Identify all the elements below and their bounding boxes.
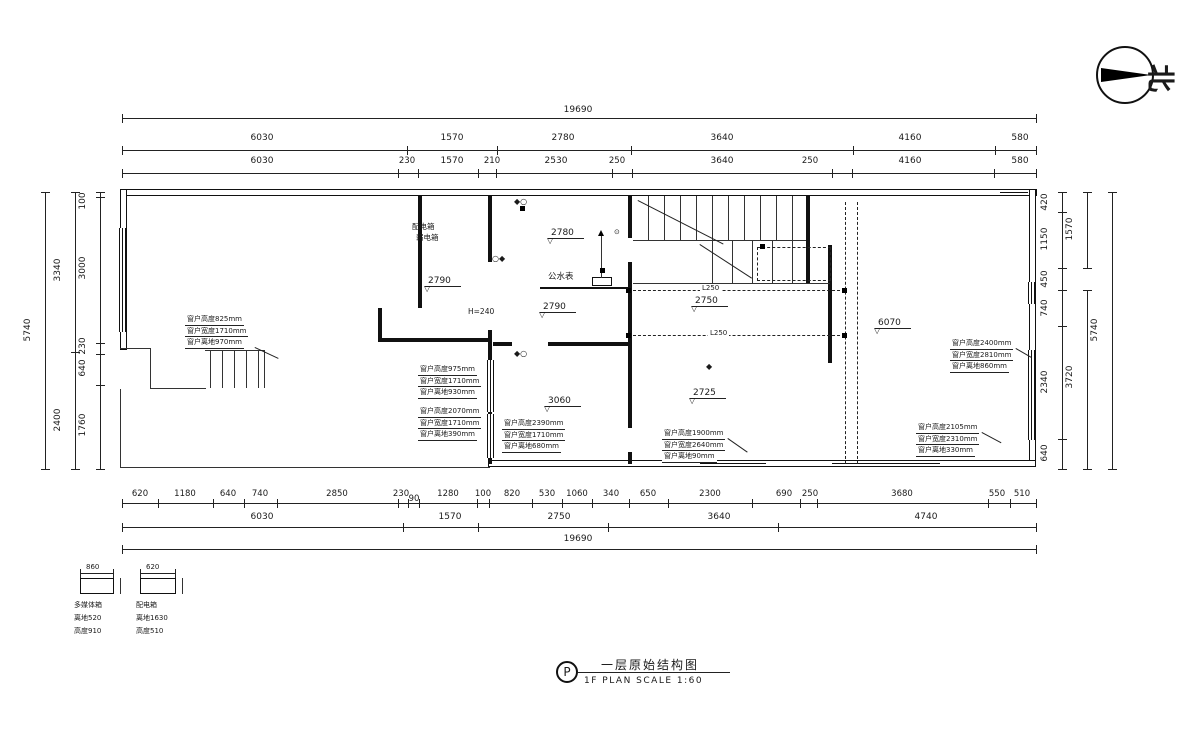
dim-label: 100 <box>470 489 496 499</box>
dim-label: 620 <box>146 563 159 571</box>
elevation-marker: ▽2725 <box>690 388 726 399</box>
window-annotation: 窗户高度2400mm窗户宽度2810mm窗户离地860mm <box>950 338 1013 373</box>
dim-label: 3340 <box>53 253 63 287</box>
window <box>1000 189 1028 196</box>
elevation-marker: ▽2750 <box>692 296 728 307</box>
dim-label: 2780 <box>541 133 585 143</box>
dim-label: 3640 <box>700 133 744 143</box>
dim-label: 640 <box>78 351 88 385</box>
dim-label: 1570 <box>1065 212 1075 246</box>
window <box>832 460 940 467</box>
dim-label: 210 <box>479 156 505 166</box>
opening-height-label: H=240 <box>468 307 494 316</box>
drawing-subtitle: 1F PLAN SCALE 1:60 <box>584 676 703 686</box>
elevation-marker: ▽2780 <box>548 228 584 239</box>
weak-box-label: 弱电箱 <box>416 232 439 243</box>
elevation-marker: ▽2790 <box>540 302 576 313</box>
dim-label: 4160 <box>888 133 932 143</box>
dim-label: 4160 <box>888 156 932 166</box>
dim-label: 580 <box>998 133 1042 143</box>
dim-label: 250 <box>797 489 823 499</box>
beam-label: L250 <box>708 329 729 337</box>
dim-label: 640 <box>215 489 241 499</box>
dim-label: 740 <box>247 489 273 499</box>
window-annotation: 窗户高度2390mm窗户宽度1710mm窗户离地680mm <box>502 418 565 453</box>
detail-label: 离地520 <box>74 613 101 623</box>
dim-label: 1060 <box>564 489 590 499</box>
window <box>487 414 494 458</box>
dim-label: 640 <box>1040 436 1050 470</box>
dim-label: 860 <box>86 563 99 571</box>
window <box>1028 350 1035 440</box>
dim-label: 2300 <box>697 489 723 499</box>
detail-label: 离地1630 <box>136 613 168 623</box>
window <box>119 228 126 332</box>
dim-label: 6030 <box>240 512 284 522</box>
beam-line <box>857 202 858 464</box>
dim-label: 100 <box>78 184 88 218</box>
dim-label: 1180 <box>172 489 198 499</box>
dim-label: 580 <box>998 156 1042 166</box>
wall-top <box>120 189 1037 196</box>
wall-interior <box>548 342 630 346</box>
floor-plan-drawing: 北 19690 6030 1570 2780 3640 4160 580 603… <box>0 0 1200 737</box>
valve-icon: ◆ <box>706 362 712 371</box>
wall-interior <box>628 196 632 238</box>
dim-label: 2850 <box>324 489 350 499</box>
window-annotation: 窗户高度2105mm窗户宽度2310mm窗户离地330mm <box>916 422 979 457</box>
dim-label: 5740 <box>1090 313 1100 347</box>
dim-label: 3640 <box>700 156 744 166</box>
dim-label: 1760 <box>78 408 88 442</box>
window-annotation: 窗户高度1900mm窗户宽度2640mm窗户离地90mm <box>662 428 725 463</box>
dim-label: 340 <box>598 489 624 499</box>
dim-label: 2400 <box>53 403 63 437</box>
water-meter-label: 公水表 <box>548 270 574 282</box>
beam-label: L250 <box>700 284 721 292</box>
beam-line <box>633 335 845 336</box>
pipe-arrow-icon <box>598 230 604 236</box>
stair-break-line <box>699 244 752 279</box>
dim-label: 19690 <box>556 105 600 115</box>
dim-label: 1570 <box>428 512 472 522</box>
plan-mark: P <box>556 661 578 683</box>
dim-label: 740 <box>1040 291 1050 325</box>
beam-line <box>633 290 845 291</box>
dim-label: 6030 <box>240 133 284 143</box>
dim-label: 250 <box>797 156 823 166</box>
window <box>1028 282 1035 304</box>
wall-interior <box>493 342 512 346</box>
window-annotation: 窗户高度975mm窗户宽度1710mm窗户离地930mm <box>418 364 481 399</box>
dim-label: 3640 <box>697 512 741 522</box>
dim-label: 530 <box>534 489 560 499</box>
window <box>487 360 494 412</box>
dim-label: 690 <box>771 489 797 499</box>
valve-icon: ◆○ <box>514 349 527 358</box>
detail-label: 高度910 <box>74 626 101 636</box>
dim-label: 1570 <box>430 133 474 143</box>
dim-label: 620 <box>127 489 153 499</box>
dim-label: 1150 <box>1040 222 1050 256</box>
dim-label: 3720 <box>1065 360 1075 394</box>
elevation-marker: ▽3060 <box>545 396 581 407</box>
wall-interior <box>378 338 492 342</box>
dim-label: 650 <box>635 489 661 499</box>
valve-icon: ◆○ <box>514 197 527 206</box>
dim-label: 230 <box>394 156 420 166</box>
power-box-label: 配电箱 <box>412 221 435 232</box>
water-meter-box <box>592 277 612 286</box>
window-annotation: 窗户高度2070mm窗户宽度1710mm窗户离地390mm <box>418 406 481 441</box>
dim-label: 5740 <box>23 313 33 347</box>
dim-label: 2750 <box>537 512 581 522</box>
wall-interior <box>488 196 492 262</box>
dim-label: 510 <box>1009 489 1035 499</box>
elevation-marker: ▽2790 <box>425 276 461 287</box>
entry-steps <box>205 350 265 351</box>
detail-label: 配电箱 <box>136 600 157 610</box>
dim-label: 1280 <box>435 489 461 499</box>
dim-label: 250 <box>604 156 630 166</box>
dim-label: 3680 <box>889 489 915 499</box>
detail-label: 多媒体箱 <box>74 600 102 610</box>
detail-label: 高度510 <box>136 626 163 636</box>
dim-label: 19690 <box>556 534 600 544</box>
dim-label: 4740 <box>904 512 948 522</box>
north-label: 北 <box>1142 64 1182 92</box>
detail-box <box>140 578 176 594</box>
valve-icon: ○◆ <box>492 254 505 263</box>
dim-label: 420 <box>1040 185 1050 219</box>
drawing-title: 一层原始结构图 <box>601 656 699 673</box>
wall-interior <box>628 452 632 464</box>
dim-label: 1570 <box>430 156 474 166</box>
wall-interior <box>378 308 382 342</box>
dim-label: 2340 <box>1040 365 1050 399</box>
dim-label: 3000 <box>78 251 88 285</box>
dim-label: 550 <box>984 489 1010 499</box>
elevation-marker: ▽6070 <box>875 318 911 329</box>
drain-icon: ⊙ <box>614 228 620 236</box>
dim-label: 820 <box>499 489 525 499</box>
void-outline <box>757 247 831 281</box>
wall-interior <box>418 196 422 308</box>
detail-box <box>80 578 114 594</box>
dim-label: 2530 <box>534 156 578 166</box>
dim-label: 6030 <box>240 156 284 166</box>
window-annotation: 窗户高度825mm窗户宽度1710mm窗户离地970mm <box>185 314 248 349</box>
